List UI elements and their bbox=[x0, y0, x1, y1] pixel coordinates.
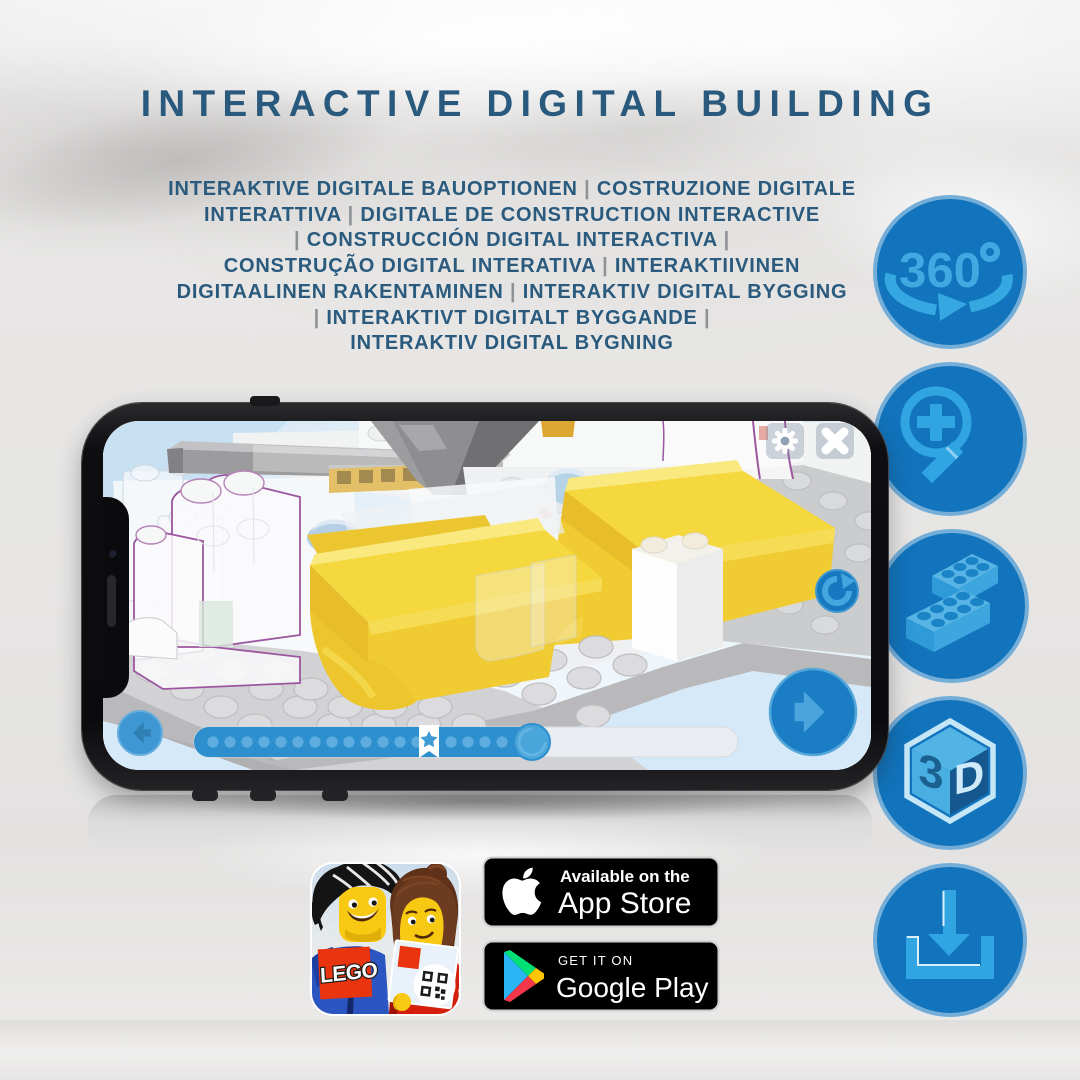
svg-text:App Store: App Store bbox=[558, 887, 691, 920]
svg-text:Google Play: Google Play bbox=[556, 972, 709, 1003]
svg-text:3: 3 bbox=[918, 744, 943, 800]
svg-text:Available on the: Available on the bbox=[560, 867, 690, 886]
svg-text:D: D bbox=[954, 750, 984, 805]
svg-text:GET IT ON: GET IT ON bbox=[558, 953, 633, 968]
svg-text:360: 360 bbox=[899, 244, 981, 298]
